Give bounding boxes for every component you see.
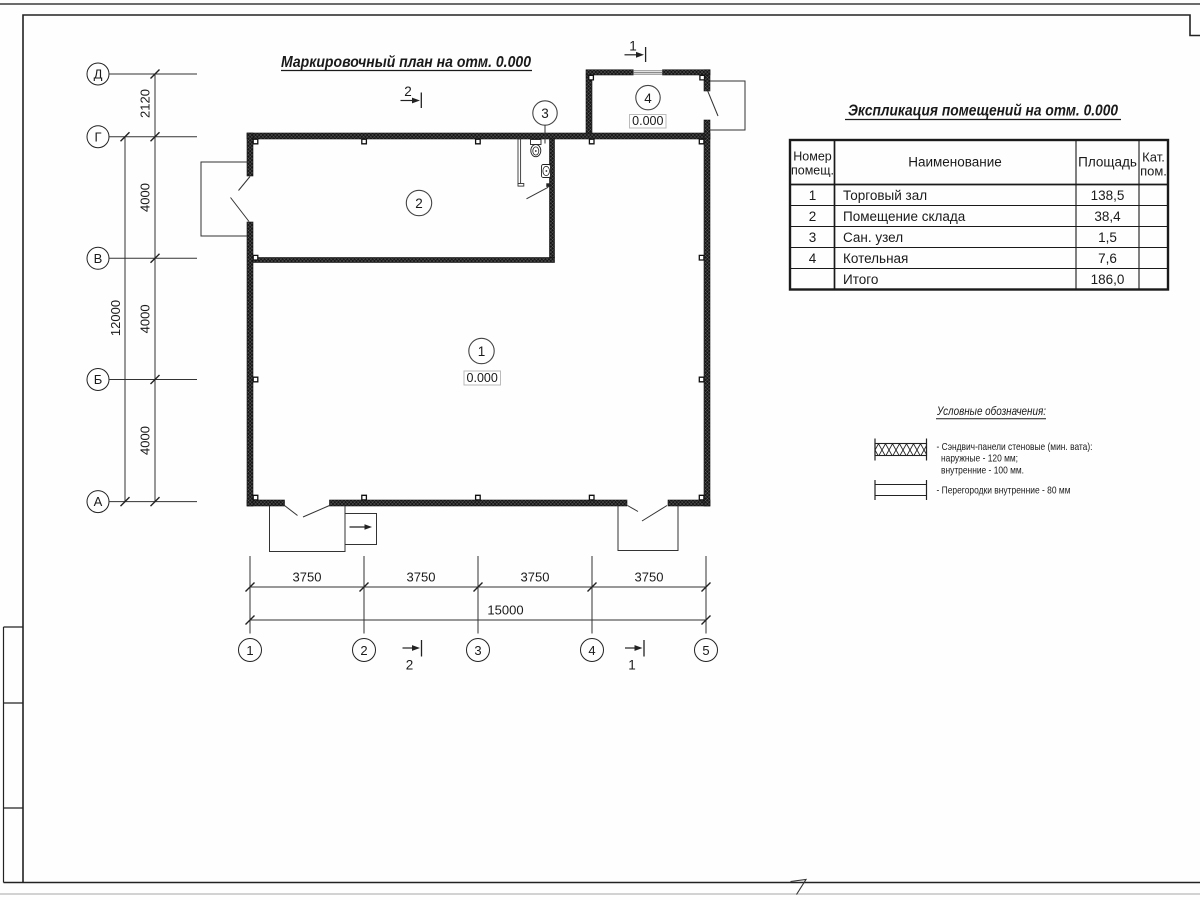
svg-text:1: 1 bbox=[478, 344, 486, 359]
svg-text:2: 2 bbox=[360, 643, 367, 658]
svg-text:Торговый зал: Торговый зал bbox=[843, 188, 927, 203]
svg-text:Итого: Итого bbox=[843, 272, 878, 287]
svg-text:3750: 3750 bbox=[635, 570, 664, 585]
svg-text:Маркировочный план на отм. 0.0: Маркировочный план на отм. 0.000 bbox=[281, 54, 531, 71]
svg-text:2: 2 bbox=[809, 209, 817, 224]
svg-text:внутренние - 100 мм.: внутренние - 100 мм. bbox=[941, 464, 1024, 476]
svg-text:0.000: 0.000 bbox=[467, 371, 498, 385]
svg-text:4: 4 bbox=[644, 91, 652, 106]
svg-text:наружные - 120 мм;: наружные - 120 мм; bbox=[941, 453, 1018, 465]
svg-text:4000: 4000 bbox=[138, 183, 153, 212]
svg-text:Сан. узел: Сан. узел bbox=[843, 230, 903, 245]
svg-text:12000: 12000 bbox=[108, 300, 123, 336]
svg-text:помещ.: помещ. bbox=[791, 164, 834, 178]
svg-text:1,5: 1,5 bbox=[1098, 230, 1117, 245]
svg-text:Котельная: Котельная bbox=[843, 251, 908, 266]
svg-text:3750: 3750 bbox=[407, 570, 436, 585]
svg-text:А: А bbox=[94, 494, 103, 509]
svg-text:5: 5 bbox=[702, 643, 709, 658]
svg-text:1: 1 bbox=[246, 643, 253, 658]
svg-text:4: 4 bbox=[588, 643, 595, 658]
svg-text:3: 3 bbox=[474, 643, 481, 658]
svg-text:2: 2 bbox=[406, 658, 414, 673]
svg-text:Д: Д bbox=[94, 67, 103, 82]
svg-text:- Сэндвич-панели стеновые (мин: - Сэндвич-панели стеновые (мин. вата): bbox=[937, 441, 1093, 453]
svg-text:В: В bbox=[94, 251, 103, 266]
svg-text:Б: Б bbox=[94, 372, 103, 387]
svg-text:15000: 15000 bbox=[487, 603, 523, 618]
svg-text:Г: Г bbox=[94, 129, 101, 144]
svg-text:2120: 2120 bbox=[138, 89, 153, 118]
svg-text:3: 3 bbox=[809, 230, 817, 245]
svg-text:Номер: Номер bbox=[793, 150, 832, 164]
svg-text:0.000: 0.000 bbox=[632, 114, 663, 128]
svg-text:Площадь: Площадь bbox=[1078, 155, 1137, 170]
svg-text:4: 4 bbox=[809, 251, 817, 266]
svg-text:2: 2 bbox=[404, 84, 412, 99]
svg-text:2: 2 bbox=[415, 196, 423, 211]
svg-text:Экспликация помещений на отм.: Экспликация помещений на отм. 0.000 bbox=[848, 103, 1118, 120]
svg-text:Наименование: Наименование bbox=[908, 155, 1002, 170]
svg-text:Условные обозначения:: Условные обозначения: bbox=[936, 404, 1046, 418]
svg-text:Кат.: Кат. bbox=[1142, 150, 1165, 165]
svg-text:4000: 4000 bbox=[138, 304, 153, 333]
svg-text:1: 1 bbox=[809, 188, 817, 203]
svg-text:1: 1 bbox=[628, 658, 636, 673]
svg-text:7,6: 7,6 bbox=[1098, 251, 1117, 266]
svg-text:4000: 4000 bbox=[138, 426, 153, 455]
svg-text:186,0: 186,0 bbox=[1091, 272, 1125, 287]
svg-text:1: 1 bbox=[629, 39, 637, 54]
svg-text:3750: 3750 bbox=[521, 570, 550, 585]
svg-text:Помещение склада: Помещение склада bbox=[843, 209, 966, 224]
svg-text:38,4: 38,4 bbox=[1094, 209, 1121, 224]
svg-text:138,5: 138,5 bbox=[1091, 188, 1125, 203]
svg-text:- Перегородки внутренние - 80: - Перегородки внутренние - 80 мм bbox=[937, 485, 1071, 497]
svg-text:пом.: пом. bbox=[1140, 164, 1167, 179]
svg-text:3: 3 bbox=[541, 106, 549, 121]
svg-text:3750: 3750 bbox=[293, 570, 322, 585]
